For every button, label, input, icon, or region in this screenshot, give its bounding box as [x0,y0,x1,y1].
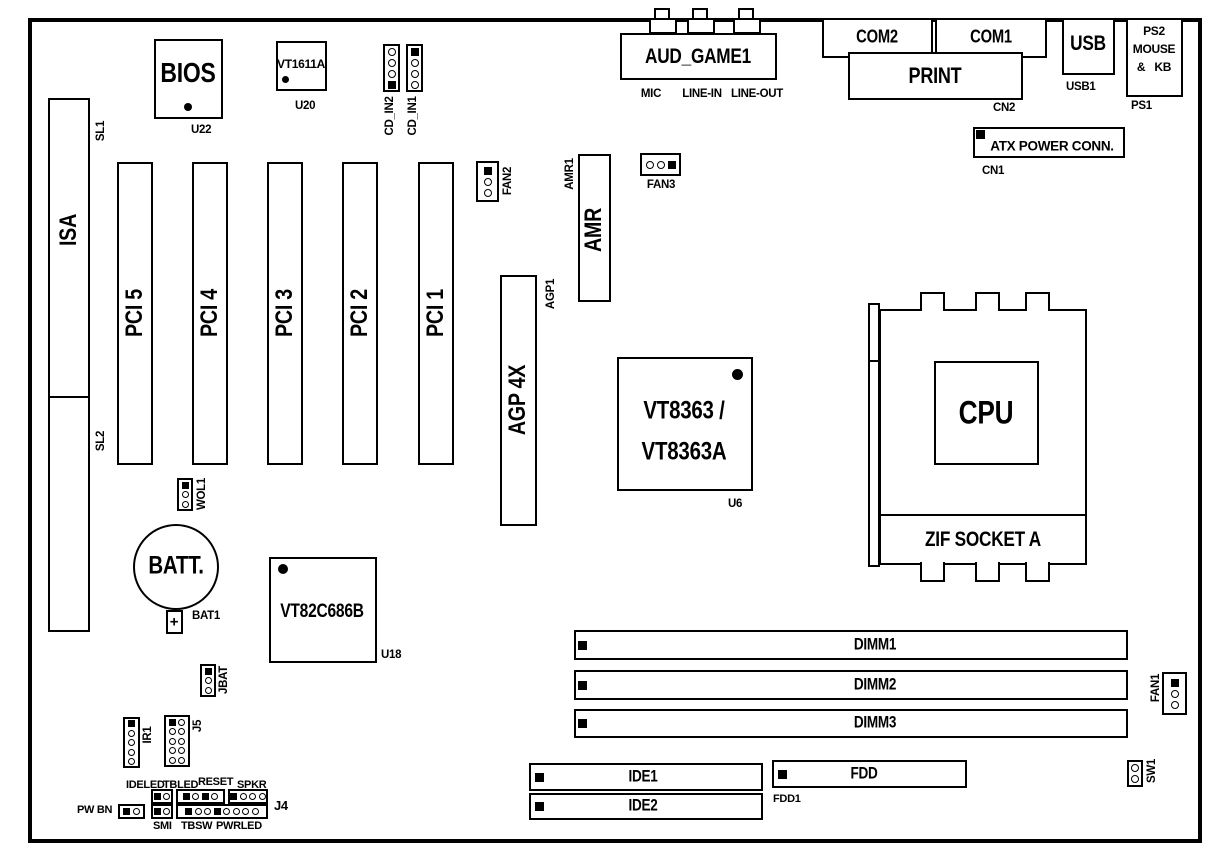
cpu-socket-lever-divider [870,360,878,362]
ir-header [123,717,140,768]
pin-circle [182,491,189,498]
dimm1-label: DIMM1 [854,636,896,655]
ps2-label-line2: MOUSE [1133,42,1176,56]
pin-square [154,793,161,800]
dimm3-label: DIMM3 [854,714,896,733]
pin-circle [192,793,199,800]
wol-header [177,478,193,511]
pin-circle [205,677,212,684]
aud-game-label: AUD_GAME1 [645,45,751,69]
dimm2-pin1-marker [578,681,587,690]
south-bridge-label: VT82C686B [280,601,364,623]
ideled-header [151,789,173,804]
pci3-slot-label: PCI 3 [271,289,299,337]
north-bridge-pin1-dot [732,369,743,380]
pin-square [185,808,192,815]
agp-slot-label: AGP 4X [504,365,532,435]
dimm3-pin1-marker [578,719,587,728]
cd-in2-label: CD_IN2 [384,96,396,135]
amr-ref: AMR1 [564,158,576,189]
pin-circle [169,747,176,754]
pin-circle [411,81,419,89]
fan1-header [1162,672,1187,715]
ps2-label-line1: PS2 [1143,24,1165,38]
dimm2-slot [574,670,1128,700]
pin-circle [484,189,492,197]
pin-square [411,48,419,56]
pin-square [183,793,190,800]
atx-power-ref: CN1 [982,165,1004,177]
spkr-header [228,789,268,804]
cd-in1-label: CD_IN1 [407,96,419,135]
fdd-label: FDD [850,765,877,784]
ide2-label: IDE2 [628,797,657,816]
pci4-slot-label: PCI 4 [196,289,224,337]
sw1-label: SW1 [1146,759,1158,783]
pin-circle [1131,764,1139,772]
dimm3-slot [574,709,1128,738]
smi-label: SMI [153,820,172,832]
audio-jack-base [687,18,715,34]
tbsw-pwrled-header [176,804,268,819]
mic-label: MIC [641,88,661,100]
isa-sl1-ref: SL1 [95,121,107,141]
cpu-socket-tab-top [1025,292,1050,311]
pci1-slot-label: PCI 1 [422,289,450,337]
usb-ref: USB1 [1066,81,1095,93]
atx-power-label: ATX POWER CONN. [990,139,1114,154]
jbat-header [200,664,216,697]
bios-ref: U22 [191,124,211,136]
pin-square [169,719,176,726]
pin-square [668,161,676,169]
dimm1-slot [574,630,1128,660]
motherboard-diagram: ISA SL1 SL2 PCI 5 PCI 4 PCI 3 PCI 2 PCI … [0,0,1225,856]
pin-circle [388,70,396,78]
sw1-header [1127,760,1143,787]
pci5-slot-label: PCI 5 [121,289,149,337]
pin-square [230,793,237,800]
jbat-label: JBAT [218,666,230,694]
reset-label: RESET [198,776,233,788]
ir-label: IR1 [142,727,154,744]
pwrled-label: PWRLED [216,820,262,832]
pin-circle [259,793,266,800]
line-in-label: LINE-IN [682,88,721,100]
pin-circle [205,687,212,694]
usb-label: USB [1070,32,1106,56]
battery-ref: BAT1 [192,610,220,622]
pin-circle [484,178,492,186]
zif-socket-label: ZIF SOCKET A [925,528,1041,552]
bios-chip-label: BIOS [160,57,215,89]
pin-circle [646,161,654,169]
fan3-header [640,153,681,176]
dimm2-label: DIMM2 [854,676,896,695]
pin-circle [411,70,419,78]
cpu-socket-tab-bottom [975,562,1000,582]
pin-circle [163,808,170,815]
pin-circle [242,808,249,815]
j4-ref: J4 [274,798,288,813]
pin-circle [178,747,185,754]
fan3-label: FAN3 [647,179,675,191]
audio-jack-base [733,18,761,34]
pin-circle [182,501,189,508]
audio-codec-label: VT1611A [277,57,325,71]
power-button-header [118,804,145,819]
fdd-pin1-marker [778,770,787,779]
pin-circle [169,728,176,735]
pin-circle [163,793,170,800]
print-label: PRINT [909,63,962,89]
pin-circle [128,739,135,746]
ps2-label-line3: & KB [1137,60,1171,74]
pin-square [388,81,396,89]
pin-circle [240,793,247,800]
pin-circle [1131,775,1139,783]
isa-slot-label: ISA [55,214,83,246]
isa-sl2-ref: SL2 [95,431,107,451]
smi-header [151,804,173,819]
ide2-pin1-marker [535,802,544,811]
dimm1-pin1-marker [578,641,587,650]
pin-circle [169,757,176,764]
bios-pin1-dot [184,103,192,111]
pin-square [154,808,161,815]
pin-circle [178,738,185,745]
pin-circle [1171,690,1179,698]
pin-circle [223,808,230,815]
pin-circle [233,808,240,815]
pin-circle [178,757,185,764]
ps2-ref: PS1 [1131,100,1152,112]
tbled-reset-header [176,789,225,804]
pin-circle [128,758,135,765]
pin-circle [1171,701,1179,709]
cpu-socket-tab-bottom [1025,562,1050,582]
south-bridge-pin1-dot [278,564,288,574]
fan1-label: FAN1 [1150,674,1162,702]
pin-square [214,808,221,815]
audio-jack-base [649,18,677,34]
south-bridge-ref: U18 [381,649,401,661]
battery-polarity: + [170,614,178,631]
pin-circle [133,808,140,815]
fan2-header [476,161,499,202]
battery-label: BATT. [148,552,203,581]
cpu-label: CPU [959,395,1014,432]
print-ref: CN2 [993,102,1015,114]
com2-label: COM2 [856,27,898,48]
audio-codec-pin1-dot [282,76,289,83]
pin-circle [388,59,396,67]
pin-circle [204,808,211,815]
pin-square [202,793,209,800]
pin-circle [178,728,185,735]
pin-circle [249,793,256,800]
north-bridge-label-line1: VT8363 / [643,397,724,426]
pin-circle [128,749,135,756]
north-bridge-ref: U6 [728,498,742,510]
agp-ref: AGP1 [545,279,557,309]
fan2-label: FAN2 [502,167,514,195]
pin-square [484,167,492,175]
cpu-socket-tab-top [920,292,945,311]
cd-in2-header [383,44,400,92]
cpu-socket-tab-top [975,292,1000,311]
ide1-label: IDE1 [628,768,657,787]
pin-square [1171,679,1179,687]
fdd-ref: FDD1 [773,793,801,805]
pin-circle [657,161,665,169]
pin-square [205,668,212,675]
pin-square [123,808,130,815]
ide1-pin1-marker [535,773,544,782]
pin-square [128,720,135,727]
pin-circle [211,793,218,800]
isa-slot-divider [50,396,88,398]
atx-pin1-marker [976,130,985,139]
cd-in1-header [406,44,423,92]
line-out-label: LINE-OUT [731,88,783,100]
wol-label: WOL1 [196,478,208,510]
j5-label: J5 [192,720,204,732]
zif-band-divider [881,514,1085,516]
isa-slot [48,98,90,632]
pci2-slot-label: PCI 2 [346,289,374,337]
pin-circle [388,48,396,56]
pin-circle [411,59,419,67]
j5-header [164,715,190,767]
power-button-label: PW BN [77,804,112,816]
audio-codec-ref: U20 [295,100,315,112]
com1-label: COM1 [970,27,1012,48]
cpu-socket-tab-bottom [920,562,945,582]
pin-circle [128,730,135,737]
pin-circle [195,808,202,815]
pin-circle [169,738,176,745]
amr-slot-label: AMR [580,208,608,252]
pin-circle [252,808,259,815]
pin-square [182,482,189,489]
pin-circle [178,719,185,726]
tbsw-label: TBSW [181,820,212,832]
north-bridge-label-line2: VT8363A [642,438,727,467]
